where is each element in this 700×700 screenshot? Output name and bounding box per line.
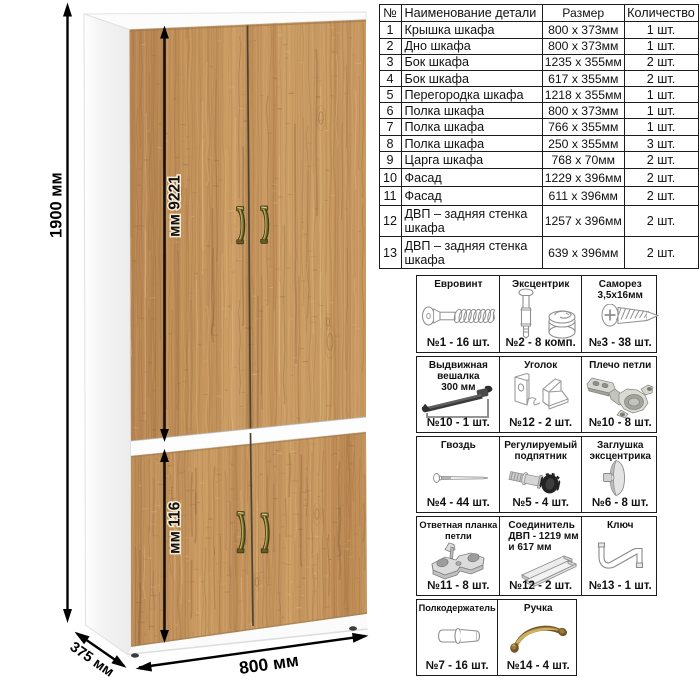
svg-text:800 мм: 800 мм — [238, 650, 300, 678]
svg-text:375 мм: 375 мм — [67, 639, 117, 680]
svg-text:мм 116: мм 116 — [167, 501, 184, 554]
svg-text:мм 9221: мм 9221 — [167, 175, 184, 237]
svg-text:1900 мм: 1900 мм — [48, 172, 66, 238]
